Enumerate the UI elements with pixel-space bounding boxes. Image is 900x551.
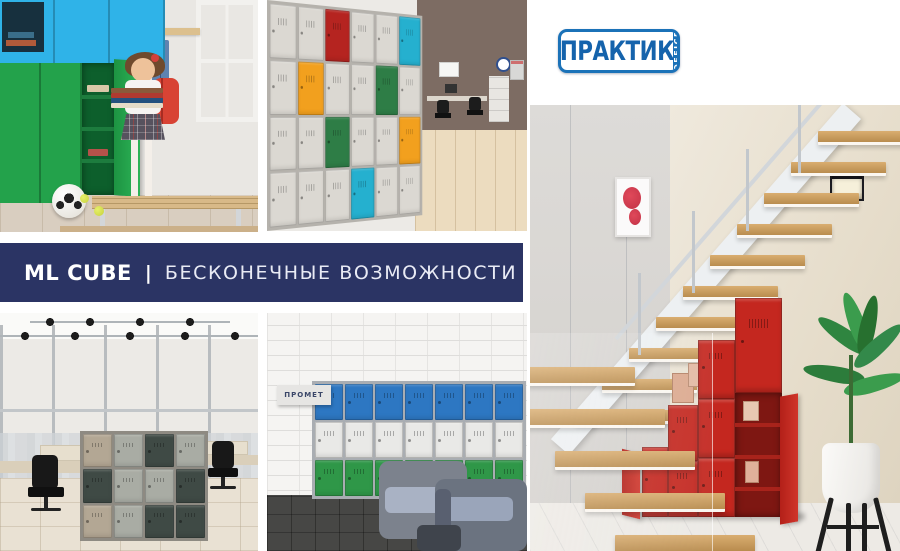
locker-cell bbox=[114, 469, 143, 502]
locker-cell bbox=[270, 60, 297, 115]
wall-poster bbox=[510, 60, 524, 80]
photo-school-locker-room bbox=[0, 0, 258, 232]
locker-cell bbox=[376, 116, 398, 165]
locker-cell bbox=[298, 116, 324, 169]
locker-cell bbox=[325, 116, 349, 168]
cube-locker-grid bbox=[267, 0, 422, 231]
locker-cell bbox=[376, 167, 398, 218]
promet-sign: ПРОМЕТ bbox=[277, 385, 331, 405]
office-cabinet bbox=[489, 76, 509, 122]
product-name: ML CUBE bbox=[24, 261, 132, 285]
chair-back bbox=[469, 97, 481, 111]
window bbox=[196, 0, 258, 122]
tennis-ball bbox=[80, 194, 89, 203]
office-chair bbox=[467, 97, 483, 119]
locker-cell bbox=[176, 434, 205, 467]
locker-cell bbox=[298, 61, 324, 114]
whiteboard bbox=[439, 62, 459, 77]
sofa-cushion bbox=[443, 497, 513, 521]
glass-balustrade bbox=[530, 333, 713, 551]
locker-cell bbox=[315, 422, 343, 458]
spotlights bbox=[0, 331, 258, 341]
locker-cell bbox=[435, 422, 463, 458]
photo-staircase-red-lockers bbox=[530, 105, 900, 551]
wood-floor bbox=[415, 130, 527, 231]
locker-cell bbox=[405, 384, 433, 420]
promet-sign-text: ПРОМЕТ bbox=[284, 391, 323, 399]
locker-cell bbox=[270, 3, 297, 59]
locker-cell bbox=[325, 169, 349, 222]
locker-cell bbox=[495, 384, 523, 420]
chair-seat bbox=[467, 110, 483, 115]
locker-cell bbox=[345, 384, 373, 420]
chair-seat bbox=[435, 113, 451, 118]
locker-cell bbox=[315, 460, 343, 496]
open-locker-cube bbox=[2, 2, 44, 52]
locker-cell bbox=[325, 63, 349, 115]
locker-cell bbox=[83, 434, 112, 467]
office-chair bbox=[208, 441, 244, 491]
plaid-skirt bbox=[121, 114, 165, 140]
wooden-bench bbox=[92, 196, 258, 209]
banner-tagline: БЕСКОНЕЧНЫЕ ВОЗМОЖНОСТИ bbox=[165, 262, 517, 284]
locker-cell bbox=[145, 505, 174, 538]
chair-back bbox=[212, 441, 234, 469]
girl-leg bbox=[131, 140, 138, 198]
logo-office-tab: OFFICE bbox=[673, 32, 680, 70]
chair-seat bbox=[28, 487, 64, 497]
locker-cell bbox=[376, 65, 398, 114]
locker-cell bbox=[351, 116, 374, 167]
locker-cell bbox=[345, 460, 373, 496]
locker-cell bbox=[495, 422, 523, 458]
chair-base bbox=[31, 508, 61, 511]
chair-back bbox=[32, 455, 58, 489]
locker-cell bbox=[399, 165, 420, 214]
locker-cell bbox=[145, 434, 174, 467]
locker-cell bbox=[351, 64, 374, 115]
locker-cell bbox=[145, 469, 174, 502]
locker-cell bbox=[270, 172, 297, 228]
locker-cell bbox=[176, 469, 205, 502]
locker-cell bbox=[399, 66, 420, 114]
photo-cube-locker-wall bbox=[267, 0, 527, 231]
photo-lobby-lockers: ПРОМЕТ bbox=[267, 313, 527, 551]
praktik-office-logo: ПРАКТИК OFFICE bbox=[558, 29, 680, 73]
locker-cell bbox=[325, 9, 349, 62]
wall-clock bbox=[496, 57, 511, 72]
locker-cell bbox=[114, 434, 143, 467]
office-locker-grid bbox=[80, 431, 208, 541]
locker-cell bbox=[375, 384, 403, 420]
locker-cell bbox=[345, 422, 373, 458]
chair-base bbox=[210, 486, 236, 489]
tennis-ball bbox=[94, 206, 104, 216]
locker-cell bbox=[298, 6, 324, 61]
tagline-banner: ML CUBE | БЕСКОНЕЧНЫЕ ВОЗМОЖНОСТИ bbox=[0, 243, 523, 302]
locker-cell bbox=[375, 422, 403, 458]
green-lockers bbox=[0, 63, 82, 203]
locker-cell bbox=[176, 505, 205, 538]
bench-leg bbox=[236, 209, 241, 227]
locker-item bbox=[6, 40, 36, 46]
office-chair bbox=[435, 100, 451, 122]
locker-cell bbox=[465, 384, 493, 420]
logo-tab-text: OFFICE bbox=[673, 30, 680, 71]
girl-figure bbox=[105, 52, 185, 212]
locker-cell bbox=[298, 170, 324, 225]
locker-cell bbox=[465, 422, 493, 458]
locker-cell bbox=[83, 469, 112, 502]
sofa-base bbox=[417, 525, 461, 551]
book bbox=[111, 103, 163, 108]
locker-cell bbox=[405, 422, 433, 458]
window-beam bbox=[0, 409, 258, 412]
girl-leg bbox=[145, 140, 152, 198]
locker-cell bbox=[376, 14, 398, 65]
hair-bow bbox=[151, 54, 159, 62]
promo-collage: ПРАКТИК OFFICE ML CUBE | БЕСКОНЕЧНЫЕ ВОЗ… bbox=[0, 0, 900, 551]
chair-seat bbox=[208, 468, 238, 477]
logo-text: ПРАКТИК bbox=[560, 29, 674, 73]
locker-cell bbox=[83, 505, 112, 538]
locker-cell bbox=[351, 11, 374, 63]
bench-rail bbox=[60, 226, 258, 232]
locker-cell bbox=[399, 16, 420, 65]
locker-cell bbox=[351, 168, 374, 220]
spotlights bbox=[30, 317, 230, 327]
office-chair bbox=[28, 455, 68, 513]
locker-cell bbox=[399, 116, 420, 164]
locker-item bbox=[8, 32, 34, 38]
chair-back bbox=[437, 100, 449, 114]
girl-head bbox=[131, 58, 155, 82]
photo-openspace-office bbox=[0, 313, 258, 551]
locker-cell bbox=[435, 384, 463, 420]
logo-frame: ПРАКТИК OFFICE bbox=[558, 29, 680, 73]
banner-separator: | bbox=[145, 262, 152, 284]
locker-cell bbox=[270, 116, 297, 171]
monitor bbox=[445, 84, 457, 93]
locker-cell bbox=[114, 505, 143, 538]
